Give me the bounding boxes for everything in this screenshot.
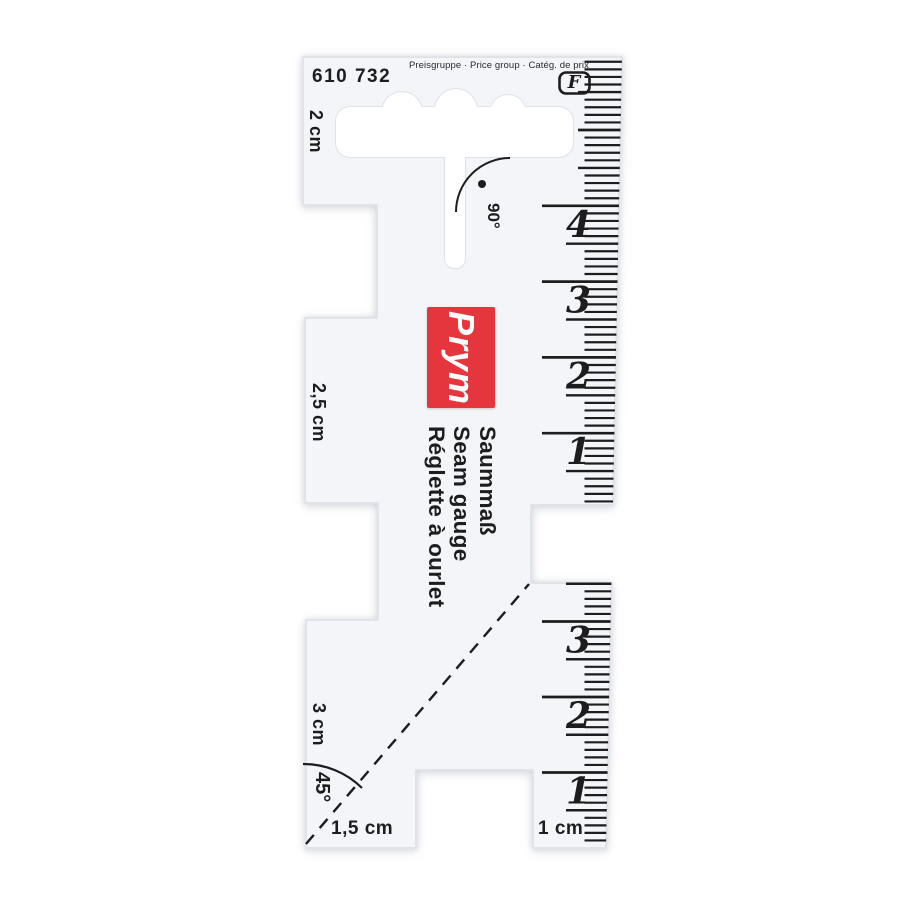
lower-scale-number: 1 <box>566 771 591 813</box>
product-names: Saummaß Seam gauge Réglette à ourlet <box>424 426 501 607</box>
lower-scale-number: 2 <box>565 695 591 737</box>
upper-scale-number: 1 <box>566 431 591 473</box>
lower-scale-number: 3 <box>566 620 591 662</box>
upper-scale-number: 2 <box>565 355 591 397</box>
price-group-code: F <box>559 72 589 93</box>
label-2cm: 2 cm <box>305 110 326 153</box>
prym-logo: Prym <box>427 307 495 408</box>
product-name-de: Saummaß <box>475 426 501 607</box>
product-name-en: Seam gauge <box>449 426 475 607</box>
product-name-fr: Réglette à ourlet <box>424 426 450 607</box>
product-photo: 4321 321 610 732 Preisgruppe · Price gro… <box>0 0 910 910</box>
angle-vertex-dot <box>478 180 486 188</box>
upper-scale-number: 4 <box>566 204 591 246</box>
label-1-5cm: 1,5 cm <box>331 818 393 840</box>
label-3cm: 3 cm <box>308 703 329 746</box>
upper-scale-number: 3 <box>566 280 591 322</box>
price-group-label: Preisgruppe · Price group · Catég. de pr… <box>400 60 589 71</box>
label-1cm: 1 cm <box>538 818 583 840</box>
label-90deg: 90° <box>483 203 503 229</box>
article-number: 610 732 <box>312 66 391 88</box>
label-45deg: 45° <box>310 772 333 802</box>
label-2-5cm: 2,5 cm <box>308 383 329 442</box>
prym-logo-text: Prym <box>440 310 482 404</box>
